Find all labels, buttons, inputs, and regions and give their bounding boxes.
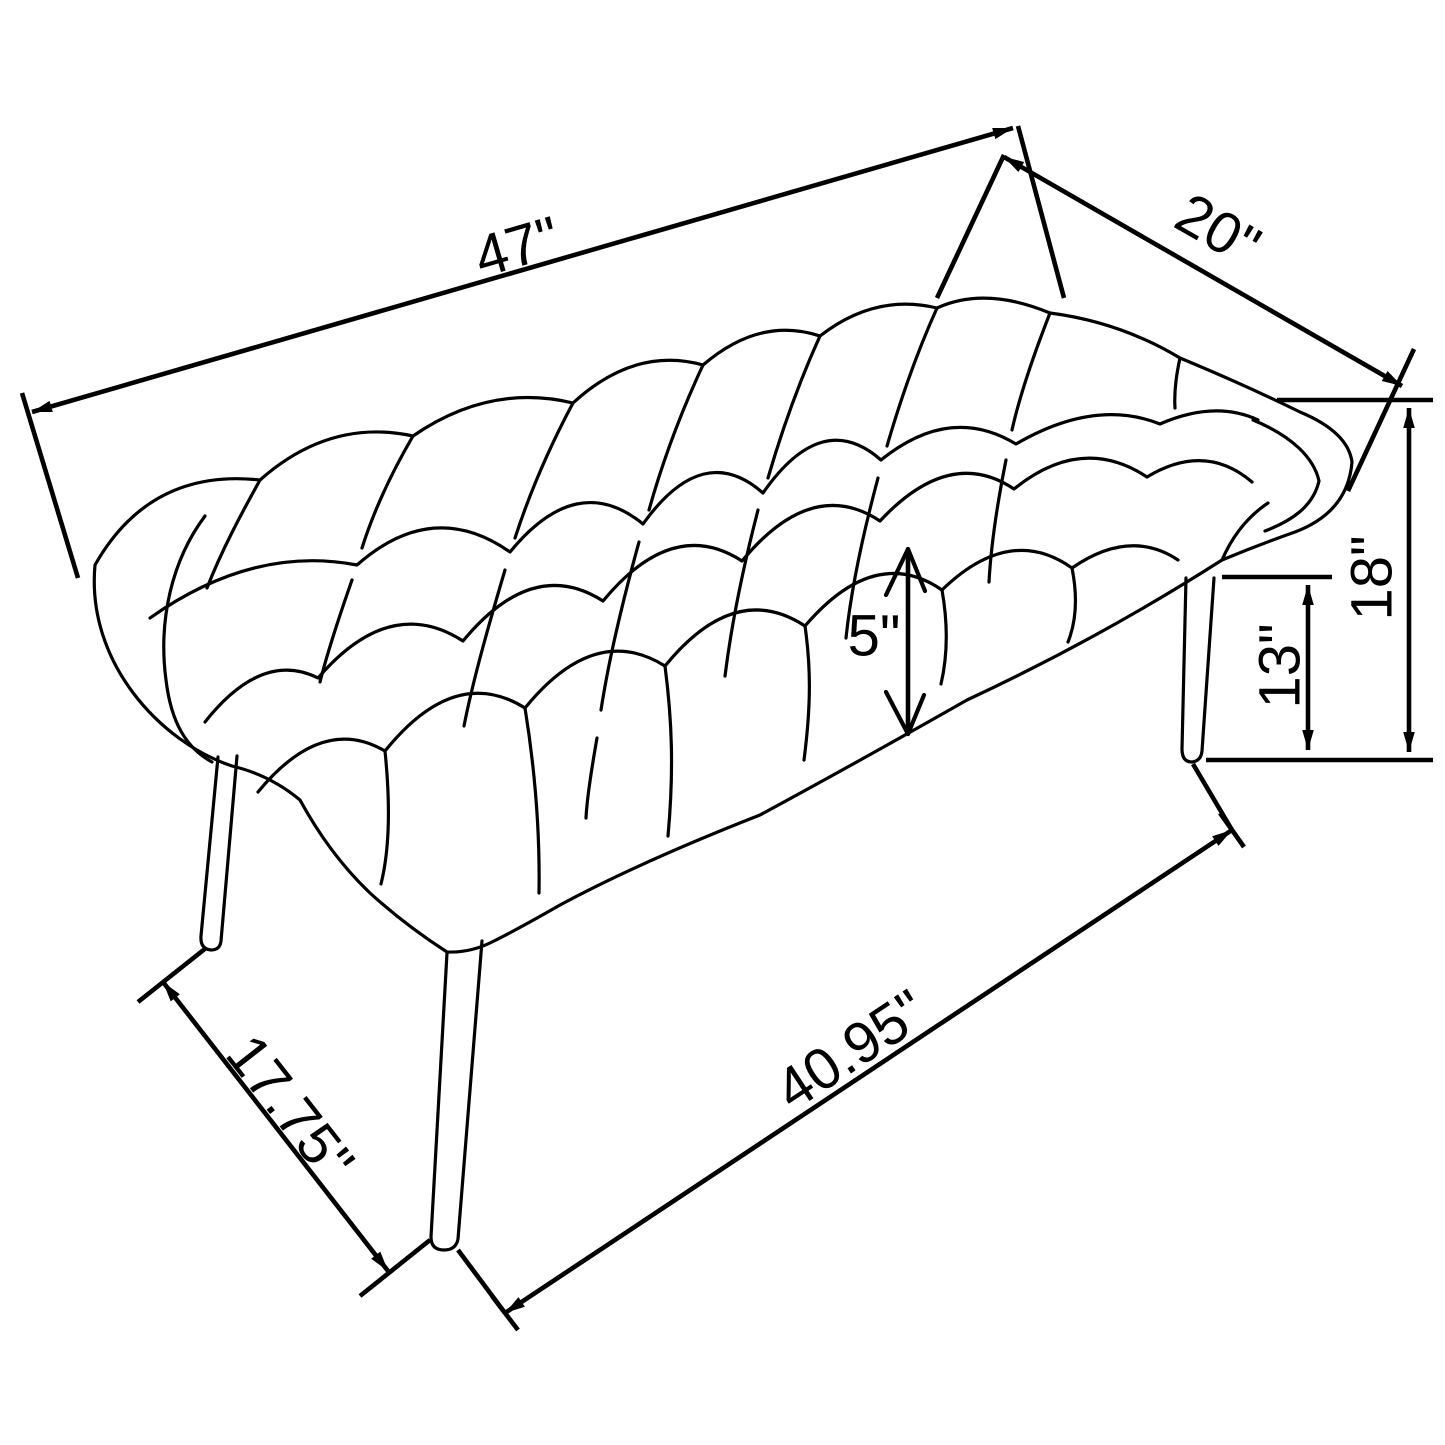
dimension-label-depth: 20" <box>1165 181 1271 280</box>
dimension-label-overall-height: 18" <box>1340 535 1405 620</box>
extension-line <box>458 1250 505 1313</box>
tuft-seam <box>1012 313 1050 430</box>
tuft-seam <box>601 542 639 710</box>
dimension-lines <box>22 126 1433 1330</box>
tuft-seam <box>586 738 597 818</box>
tuft-seam-row <box>205 458 1252 722</box>
tuft-seam-row <box>150 411 1258 618</box>
dimension-label-leg-spread-side: 17.75" <box>213 1023 366 1194</box>
arrowhead-stroke <box>886 692 908 734</box>
tuft-seam <box>1175 358 1180 408</box>
tuft-seam <box>665 666 672 836</box>
witness-tick <box>22 393 78 578</box>
tuft-seam <box>804 626 809 760</box>
tuft-seam <box>725 510 758 676</box>
witness-tick <box>1348 349 1414 491</box>
tuft-seam <box>887 308 937 446</box>
tuft-seam <box>941 590 946 684</box>
tuft-seam <box>464 570 505 726</box>
dimension-label-length: 47" <box>467 204 567 290</box>
tuft-seam <box>525 708 539 893</box>
bench-cushion-outline <box>94 298 1352 952</box>
arrowhead-stroke <box>908 549 925 591</box>
extension-line <box>1193 764 1232 830</box>
dimension-label-leg-spread-front: 40.95" <box>764 977 938 1123</box>
witness-tick <box>937 155 1004 298</box>
witness-tick <box>1018 126 1064 298</box>
tuft-seam-row <box>258 546 1178 792</box>
tuft-seam <box>320 580 352 682</box>
tuft-seam <box>1253 420 1319 531</box>
diagram-svg: 47" 20" 18" 13" 5" 17.75" 40.95" <box>0 0 1445 1445</box>
bench-leg-left <box>201 756 237 950</box>
tuft-seam <box>164 516 212 762</box>
tuft-seam <box>362 436 413 548</box>
bench-leg-front <box>431 941 482 1250</box>
tuft-seam <box>207 480 260 588</box>
tuft-seam <box>1068 568 1075 642</box>
bench-dimension-diagram: 47" 20" 18" 13" 5" 17.75" 40.95" <box>0 0 1445 1445</box>
dimension-label-leg-height: 13" <box>1248 623 1313 708</box>
tuft-seam <box>381 751 388 884</box>
dimension-label-cushion-thickness: 5" <box>848 604 901 669</box>
bench-leg-right <box>1182 578 1214 762</box>
